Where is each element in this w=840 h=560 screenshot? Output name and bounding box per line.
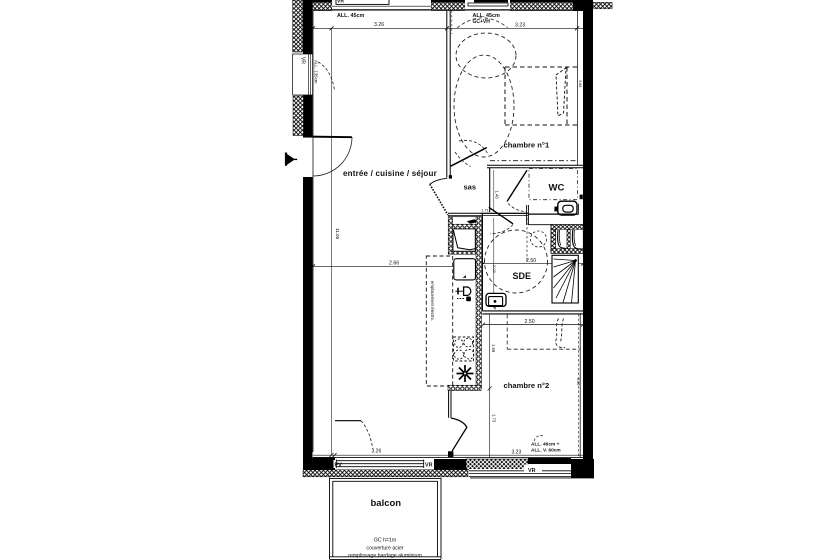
svg-text:balcon: balcon <box>371 498 402 509</box>
svg-text:ALL. 45cm: ALL. 45cm <box>337 13 364 19</box>
svg-text:ALL. 46cm +: ALL. 46cm + <box>531 442 560 448</box>
svg-text:3.88: 3.88 <box>578 80 582 87</box>
svg-text:ALL. 135cm: ALL. 135cm <box>314 60 319 84</box>
svg-text:VR: VR <box>337 0 344 5</box>
svg-text:1.73: 1.73 <box>491 414 496 423</box>
svg-text:chambre n°1: chambre n°1 <box>504 141 550 150</box>
svg-text:ALL. V. 60cm: ALL. V. 60cm <box>531 448 561 454</box>
svg-text:couverture acier: couverture acier <box>366 546 403 552</box>
svg-text:3.26: 3.26 <box>374 22 384 28</box>
svg-text:VR: VR <box>300 57 306 64</box>
svg-text:VR: VR <box>528 468 536 474</box>
svg-text:GC+VH: GC+VH <box>473 19 491 25</box>
svg-text:emplacement électro.: emplacement électro. <box>430 281 435 321</box>
svg-text:SDE: SDE <box>513 271 532 281</box>
svg-text:GC h=1m: GC h=1m <box>374 538 396 544</box>
svg-text:WC: WC <box>549 183 565 194</box>
svg-text:entrée / cuisine / séjour: entrée / cuisine / séjour <box>343 169 437 178</box>
svg-text:3.23: 3.23 <box>515 23 525 29</box>
svg-text:remplissage bardage aluminium: remplissage bardage aluminium <box>348 553 422 559</box>
svg-text:2.50: 2.50 <box>525 319 535 325</box>
svg-text:sas: sas <box>464 183 477 192</box>
svg-text:3.65: 3.65 <box>576 378 580 385</box>
svg-text:2.50: 2.50 <box>526 258 536 264</box>
svg-text:1.40: 1.40 <box>495 191 500 200</box>
svg-text:1.71: 1.71 <box>481 208 490 213</box>
svg-text:2.03: 2.03 <box>492 265 497 274</box>
svg-text:VR: VR <box>425 463 433 469</box>
svg-text:3.26: 3.26 <box>372 449 382 455</box>
svg-text:11.06: 11.06 <box>335 228 340 240</box>
svg-text:2.66: 2.66 <box>389 261 399 267</box>
svg-text:1.69: 1.69 <box>491 344 496 353</box>
svg-text:chambre n°2: chambre n°2 <box>504 381 550 390</box>
svg-text:3.23: 3.23 <box>512 450 522 456</box>
